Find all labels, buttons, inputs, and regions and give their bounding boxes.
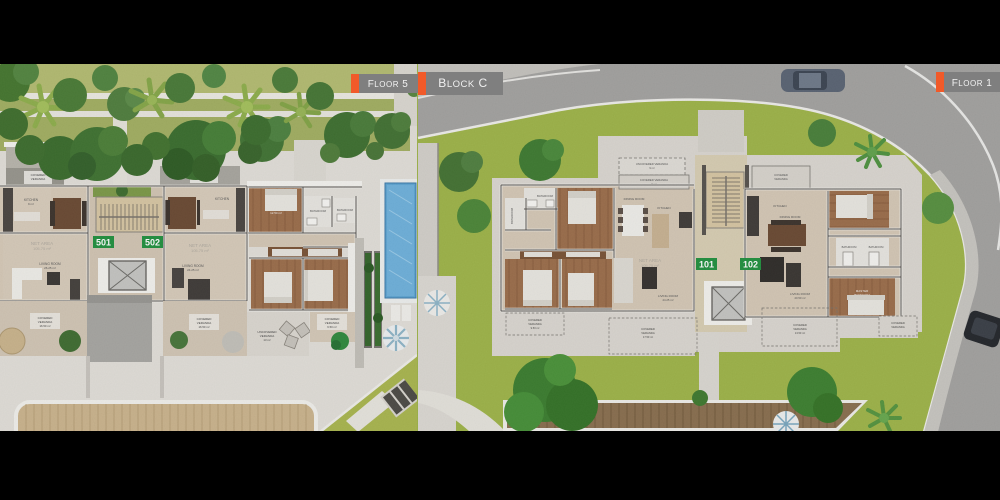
svg-text:FLOOR 1: FLOOR 1 (952, 78, 993, 89)
svg-text:FLOOR 5: FLOOR 5 (368, 79, 409, 90)
svg-text:BLOCK C: BLOCK C (438, 76, 487, 90)
